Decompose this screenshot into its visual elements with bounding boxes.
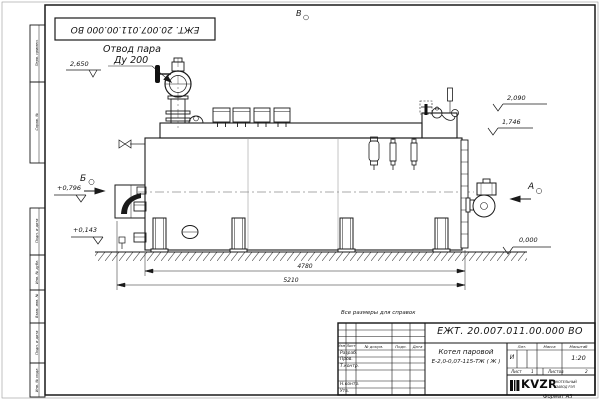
rear-pipe-and-pump (461, 140, 496, 248)
col-data: Дата (410, 345, 425, 349)
lit-value: И (507, 355, 517, 361)
ground-hatch (95, 252, 527, 261)
sheet-number: 1 (531, 370, 534, 374)
view-label-top: В (296, 10, 302, 18)
format-label: Формат А3 (543, 395, 573, 400)
centerlines (138, 58, 474, 192)
steam-valve (155, 58, 191, 123)
drawing-linework (0, 0, 600, 400)
right-deck-fittings (420, 88, 459, 120)
dim-overall-length: 5210 (271, 278, 311, 284)
elevation-shell-right: 1,746 (502, 119, 521, 126)
title-product-line1: Котел паровой (425, 349, 507, 356)
elevation-valve-top: 2,650 (70, 61, 89, 68)
deck-dome (189, 116, 203, 123)
elevation-ground: 0,000 (519, 237, 538, 244)
support-legs (151, 218, 450, 252)
sheets-total: 2 (585, 370, 588, 374)
title-product-line2: Е-2,0-0,07-115-ТЖ ( Ж ) (425, 360, 507, 366)
sheet-label: Лист (511, 370, 522, 374)
col-izm: Изм (337, 345, 346, 349)
mass-label: Масса (537, 345, 562, 349)
manhole (182, 226, 198, 239)
logo-barcode-icon (510, 380, 519, 391)
dim-shell-length: 4780 (285, 264, 325, 270)
reference-note: Все размеры для справок (341, 311, 416, 317)
row-prov: Пров. (340, 358, 353, 362)
logo-sub1: КОТЕЛЬНЫЙ (556, 381, 577, 384)
sheets-label: Листов (548, 370, 564, 374)
callout-steam-outlet-line2: Ду 200 (114, 56, 148, 66)
view-label-right: А (528, 183, 534, 192)
lit-label: Лит. (507, 345, 537, 349)
logo-text: KVZR (521, 379, 557, 391)
scale-label: Масштаб (562, 345, 595, 349)
sheet-frame (2, 2, 598, 398)
callout-steam-outlet-line1: Отвод пара (103, 45, 161, 55)
row-nkontr: Н.контр. (340, 383, 360, 387)
frame-cell-perv-primen: Перв. примен. (36, 29, 40, 77)
boiler-shell (145, 113, 462, 250)
safety-hatches (213, 108, 290, 127)
scale-value: 1:20 (562, 355, 595, 362)
view-label-left: Б (80, 175, 86, 184)
col-list: Лист (346, 345, 356, 349)
col-docum: № докум. (356, 345, 392, 349)
frame-cell-sprav-no: Справ. № (36, 98, 40, 146)
level-gauges (369, 137, 417, 170)
row-tkontr: Т.контр. (340, 365, 359, 369)
col-podp: Подп. (392, 345, 410, 349)
elevation-deck-right: 2,090 (507, 95, 526, 102)
title-doc-number: ЕЖТ. 20.007.011.00.000 ВО (425, 327, 595, 337)
drawing-sheet: ЕЖТ. 20.007.011.00.000 ВО Перв. примен. … (0, 0, 600, 400)
frame-cell-inv-podl: Инв. № подл. (36, 355, 40, 400)
elevation-manhole: +0,143 (73, 227, 97, 234)
row-razrab: Разраб. (340, 352, 357, 356)
row-utv: Утв. (340, 390, 349, 394)
stamp-doc-number: ЕЖТ. 20.007.011.00.000 ВО (55, 18, 215, 40)
elevation-burner-axis: +0,796 (57, 185, 81, 192)
elevation-marks (54, 70, 551, 254)
burner (115, 140, 146, 249)
logo-sub2: ЗАВОД РЭП (556, 386, 575, 389)
